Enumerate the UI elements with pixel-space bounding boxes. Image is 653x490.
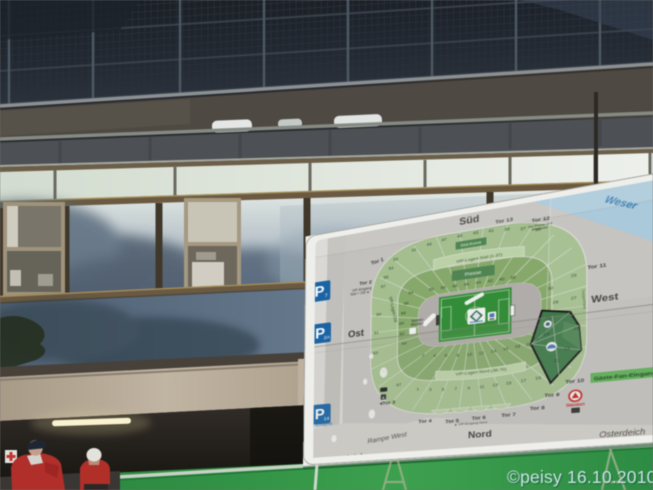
svg-text:38: 38 <box>510 275 515 280</box>
svg-text:43: 43 <box>473 230 478 235</box>
svg-text:37: 37 <box>520 226 526 232</box>
svg-text:P: P <box>315 283 325 300</box>
svg-text:45: 45 <box>457 233 462 238</box>
svg-text:2A: 2A <box>324 334 331 340</box>
svg-text:46: 46 <box>464 282 469 287</box>
svg-text:49: 49 <box>427 242 432 247</box>
svg-text:55: 55 <box>384 275 389 280</box>
svg-text:39: 39 <box>504 227 509 233</box>
svg-text:33: 33 <box>393 257 398 262</box>
svg-text:54: 54 <box>408 290 413 295</box>
svg-text:52: 52 <box>429 287 434 292</box>
svg-text:44: 44 <box>476 280 481 285</box>
svg-text:40: 40 <box>499 277 504 282</box>
svg-text:42: 42 <box>488 278 493 283</box>
svg-text:59: 59 <box>376 312 381 317</box>
svg-text:50: 50 <box>441 285 446 290</box>
svg-text:Ost: Ost <box>348 327 364 340</box>
svg-text:47: 47 <box>441 237 446 242</box>
svg-text:7: 7 <box>325 292 328 298</box>
svg-text:58: 58 <box>401 311 406 316</box>
svg-text:57: 57 <box>381 284 386 289</box>
svg-text:53: 53 <box>389 266 394 271</box>
svg-text:56: 56 <box>404 301 409 306</box>
svg-text:41: 41 <box>489 228 494 234</box>
svg-text:60: 60 <box>399 321 404 326</box>
svg-text:31: 31 <box>411 248 416 253</box>
svg-text:61: 61 <box>374 330 379 335</box>
svg-text:48: 48 <box>452 283 457 288</box>
